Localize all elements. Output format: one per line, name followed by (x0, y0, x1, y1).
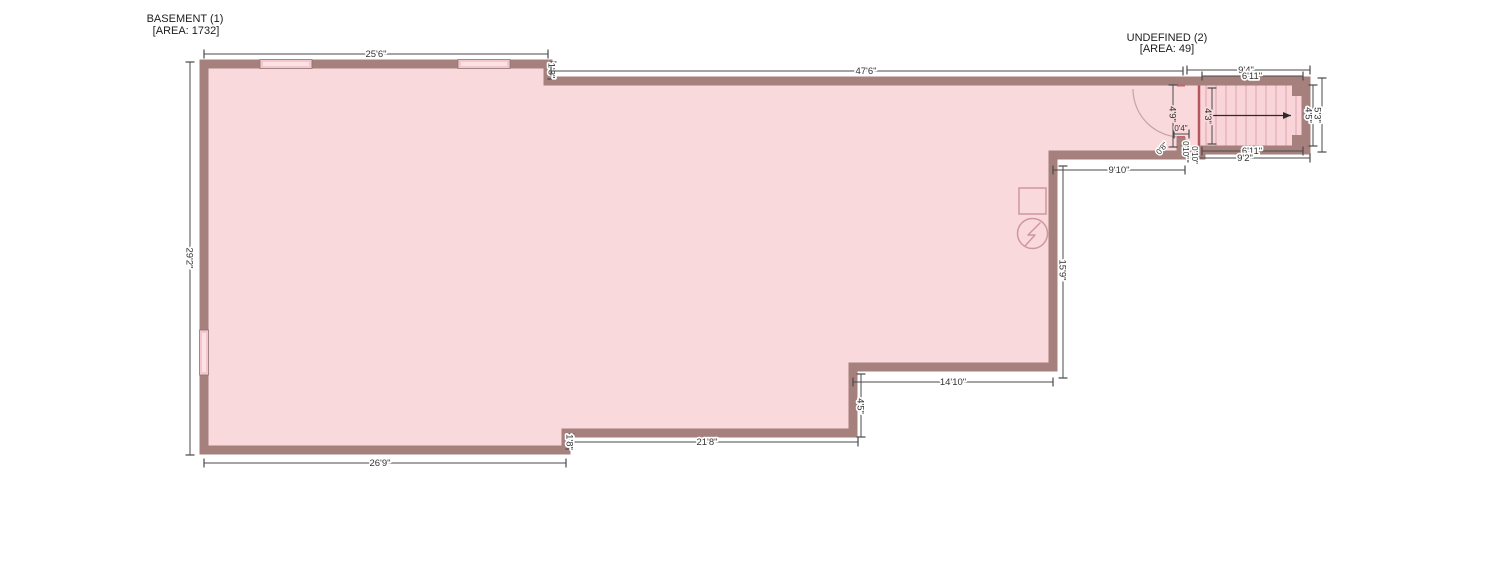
dim-corridor-width: 9'10" (1053, 165, 1185, 176)
stair-post-bottom (1292, 135, 1302, 146)
dim-label: 25'6" (365, 49, 386, 60)
room-basement-area: [AREA: 1732] (153, 25, 220, 37)
dim-label: 0'10" (1190, 146, 1199, 164)
dim-label: 0'4" (1174, 124, 1187, 133)
dim-label: 9'10" (1108, 165, 1129, 176)
floorplan-canvas: BASEMENT (1) [AREA: 1732] UNDEFINED (2) … (0, 0, 1500, 588)
dim-jog-vertical-b: 0'10" (1190, 146, 1199, 164)
dim-label: 4'3" (1202, 108, 1213, 124)
stair-post-top (1292, 86, 1302, 97)
dim-label: 21'8" (696, 437, 717, 448)
dim-label: 26'9" (369, 458, 390, 469)
dim-label: 29'2" (184, 247, 195, 268)
dim-top-left-width: 25'6" (204, 49, 548, 60)
dim-bottom-step-height: 1'8" (564, 434, 575, 450)
dim-right-wall-height: 15'9" (1057, 166, 1068, 378)
window-top-2[interactable] (458, 60, 510, 69)
dim-label: 47'6" (855, 66, 876, 77)
dim-bottom-middle-width: 21'8" (566, 437, 858, 448)
dim-landing-wall-thickness: 0'4" (1174, 124, 1189, 134)
window-top-1[interactable] (260, 60, 312, 69)
dim-label: 5'3" (1312, 107, 1323, 123)
dim-top-main-width: 47'6" (551, 66, 1183, 77)
dim-label: 4'9" (1167, 106, 1178, 122)
staircase[interactable] (1199, 86, 1302, 146)
dim-label: 4'5" (855, 398, 866, 414)
dim-jog-vertical-a: 0'10" (1181, 141, 1190, 159)
room-undefined-area: [AREA: 49] (1140, 43, 1194, 55)
room-basement-floor[interactable] (204, 64, 1306, 450)
dim-label: 15'9" (1057, 259, 1068, 280)
dim-label: 6'11" (1242, 71, 1262, 82)
dim-bottom-left-width: 26'9" (204, 458, 566, 469)
dim-label: 9'2" (1237, 153, 1253, 164)
dim-stair-outer-width-bottom: 9'2" (1188, 153, 1310, 164)
floorplan-drawing: BASEMENT (1) [AREA: 1732] UNDEFINED (2) … (0, 0, 1500, 588)
dim-label: 1'8" (564, 434, 575, 450)
dim-left-height: 29'2" (184, 62, 195, 455)
room-basement-name: BASEMENT (1) (147, 13, 224, 25)
dim-notch-width: 14'10" (853, 377, 1053, 388)
window-left[interactable] (200, 330, 209, 375)
dim-label: 14'10" (940, 377, 966, 388)
dim-label: 0'10" (1181, 141, 1190, 159)
